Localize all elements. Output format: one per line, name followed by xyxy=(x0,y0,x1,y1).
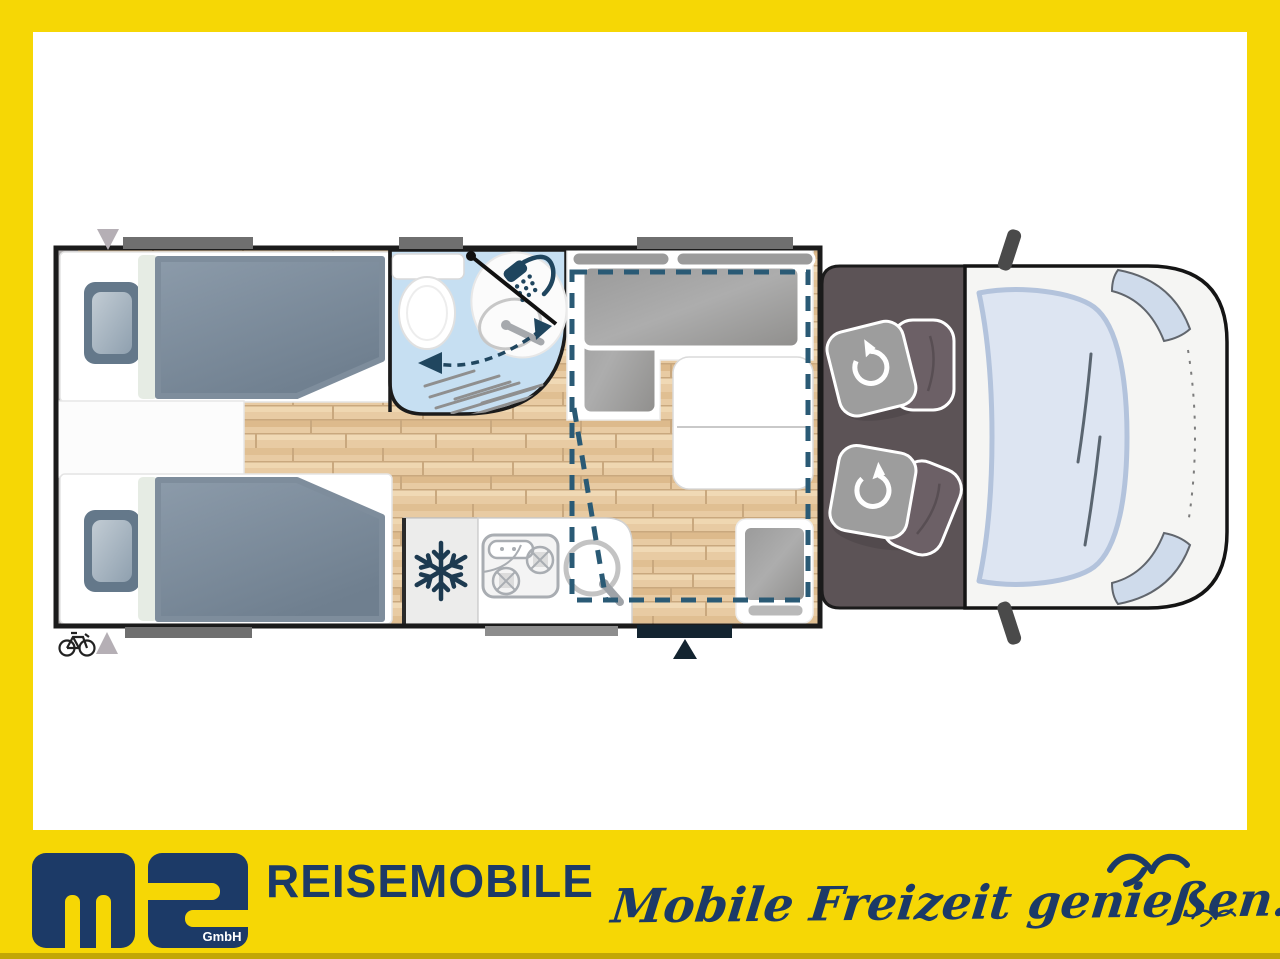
marker-triangle-icon xyxy=(96,632,118,654)
window-bar xyxy=(125,627,252,638)
logo-company-suffix: GmbH xyxy=(203,929,242,944)
entrance-door xyxy=(637,625,732,638)
seagull-icon xyxy=(1193,911,1235,926)
bed-bottom xyxy=(60,474,392,624)
service-flap-bar xyxy=(485,626,618,636)
nightstand xyxy=(58,401,244,477)
duvet xyxy=(158,480,382,619)
stove xyxy=(483,535,558,597)
floorplan-drawing xyxy=(0,0,1280,959)
logo-letter-m xyxy=(32,853,135,948)
duvet xyxy=(158,259,382,396)
seagulls xyxy=(1098,848,1258,943)
window-bar xyxy=(399,237,463,249)
dinette-table xyxy=(673,357,813,489)
dinette-single-seat xyxy=(736,519,813,623)
kitchen xyxy=(404,518,632,624)
bicycle-icon xyxy=(60,633,95,656)
window-bar xyxy=(123,237,253,249)
entrance-arrow-icon xyxy=(673,639,697,659)
cab xyxy=(822,228,1227,646)
brand-wordmark: REISEMOBILE xyxy=(266,858,594,904)
dinette-l-seat-bench xyxy=(582,266,800,348)
headrest-bar xyxy=(676,252,814,266)
window-bar xyxy=(637,237,793,249)
cab-floor xyxy=(822,266,965,608)
headrest-bar xyxy=(572,252,670,266)
bed-top xyxy=(60,252,392,402)
band-bottom-shade xyxy=(0,953,1280,959)
seagull-icon xyxy=(1110,857,1187,884)
ms-logo: GmbH xyxy=(32,853,248,948)
headrest-bar xyxy=(747,604,804,617)
windshield xyxy=(979,290,1127,585)
